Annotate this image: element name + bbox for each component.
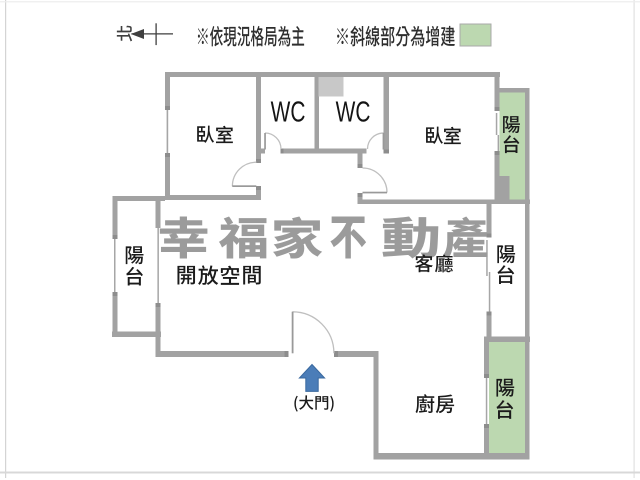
svg-text:WC: WC bbox=[271, 96, 306, 128]
svg-text:WC: WC bbox=[336, 96, 371, 128]
